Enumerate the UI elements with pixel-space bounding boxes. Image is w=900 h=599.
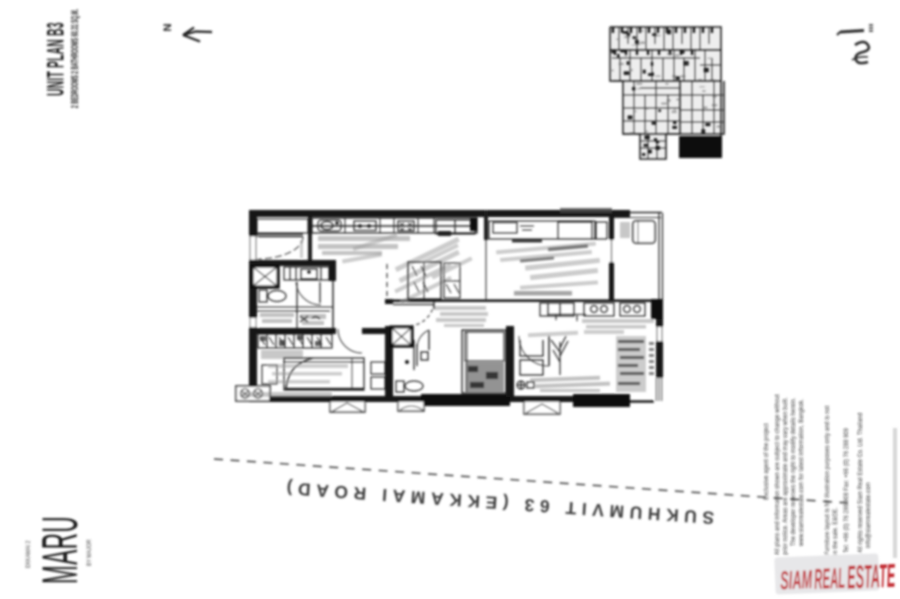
svg-text:2 BEDROOMS 2 BATHROOMS 60.31 S: 2 BEDROOMS 2 BATHROOMS 60.31 SQ.M. xyxy=(69,9,80,108)
svg-text:The developer reserves the rig: The developer reserves the right to modi… xyxy=(789,397,797,546)
svg-text:MARU: MARU xyxy=(33,516,88,584)
svg-text:SIAM: SIAM xyxy=(780,564,814,595)
svg-text:prior notice. Areas are approx: prior notice. Areas are approximate and … xyxy=(781,397,789,555)
svg-text:www.siamrealestate.com for lat: www.siamrealestate.com for latest inform… xyxy=(797,399,805,547)
svg-text:EKKAMAI 2: EKKAMAI 2 xyxy=(26,541,33,568)
svg-text:UNIT PLAN B3: UNIT PLAN B3 xyxy=(41,22,68,96)
svg-text:All rights reserved Siam Real: All rights reserved Siam Real Estate Co.… xyxy=(856,412,864,553)
svg-text:REAL: REAL xyxy=(814,563,846,596)
svg-text:BY MAJOR: BY MAJOR xyxy=(87,540,94,566)
svg-text:info@siamrealestate.com: info@siamrealestate.com xyxy=(864,482,872,548)
svg-text:ESTATE: ESTATE xyxy=(846,557,896,596)
svg-text:All plans and information show: All plans and information shown are subj… xyxy=(773,394,781,555)
svg-text:Exclusive agent of the project: Exclusive agent of the project xyxy=(762,423,770,500)
svg-text:N: N xyxy=(162,24,174,32)
svg-text:SUKHUMVIT 63 (EKKAMAI ROAD): SUKHUMVIT 63 (EKKAMAI ROAD) xyxy=(280,478,714,528)
svg-text:Tel: +66 (0) 76 288 908 Fax: +: Tel: +66 (0) 76 288 908 Fax: +66 (0) 76 … xyxy=(842,428,850,553)
svg-text:Furniture layout is for illust: Furniture layout is for illustration pur… xyxy=(823,406,831,555)
svg-text:in the sale. E&OE.: in the sale. E&OE. xyxy=(831,507,839,555)
